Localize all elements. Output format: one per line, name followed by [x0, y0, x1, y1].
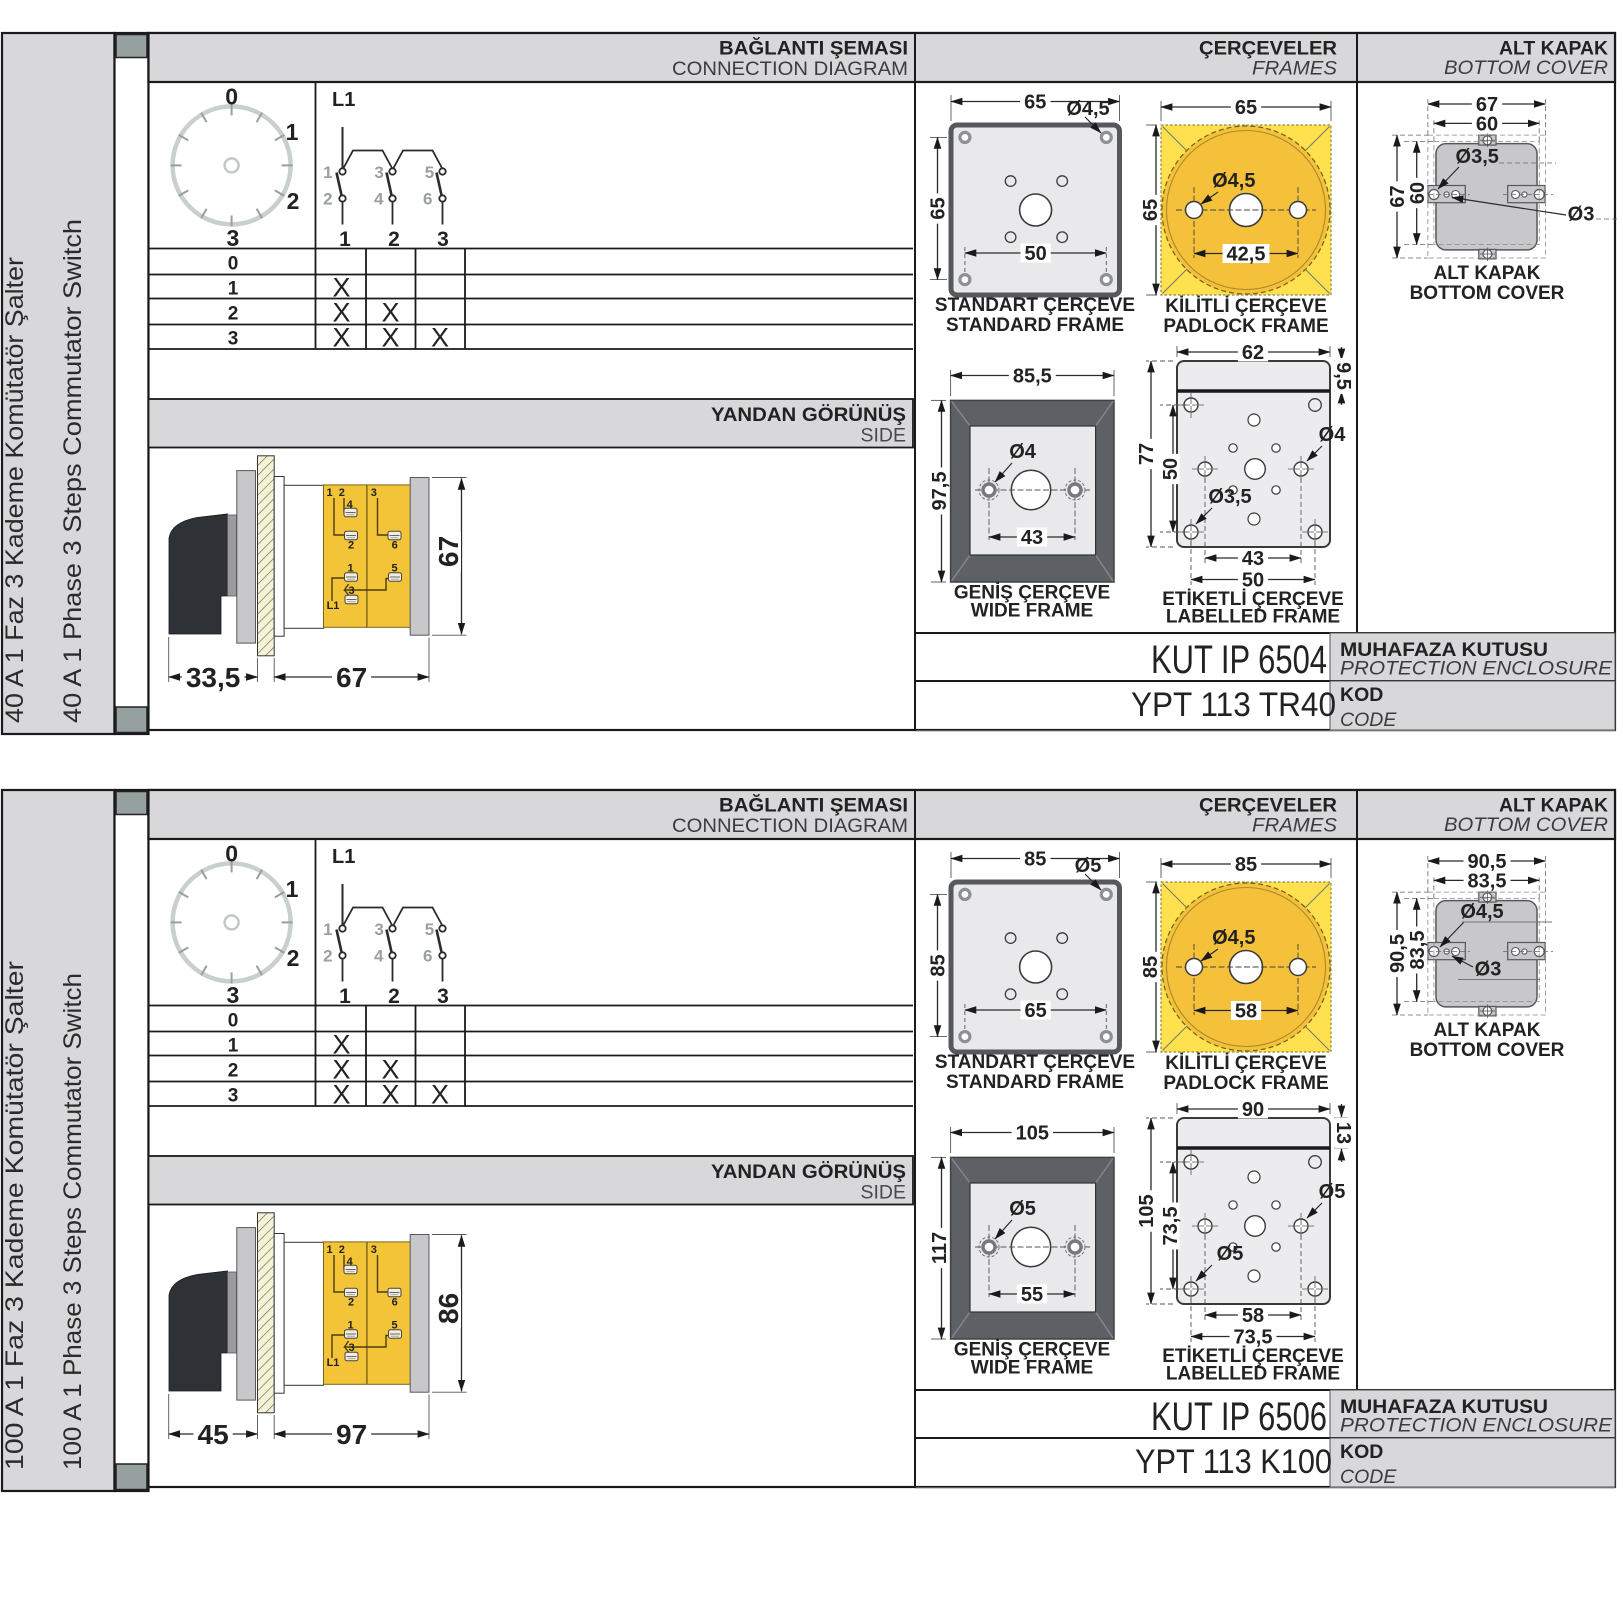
svg-text:SIDE: SIDE — [860, 425, 906, 447]
svg-text:33,5: 33,5 — [186, 662, 241, 693]
svg-text:50: 50 — [1160, 458, 1182, 480]
svg-text:97: 97 — [336, 1419, 367, 1450]
svg-text:WIDE FRAME: WIDE FRAME — [971, 1357, 1093, 1378]
svg-text:65: 65 — [928, 197, 950, 219]
svg-text:Ø3: Ø3 — [1568, 204, 1595, 226]
svg-text:Ø4: Ø4 — [1319, 424, 1347, 446]
svg-text:BOTTOM COVER: BOTTOM COVER — [1410, 1040, 1565, 1061]
svg-text:KİLİTLİ ÇERÇEVE: KİLİTLİ ÇERÇEVE — [1165, 1053, 1327, 1074]
svg-text:KOD: KOD — [1340, 1441, 1383, 1463]
svg-text:50: 50 — [1024, 243, 1046, 265]
svg-text:100 A 1 Faz 3 Kademe Komütatör: 100 A 1 Faz 3 Kademe Komütatör Şalter — [1, 961, 29, 1470]
svg-text:42,5: 42,5 — [1227, 244, 1266, 266]
svg-text:ALT KAPAK: ALT KAPAK — [1434, 263, 1541, 284]
svg-text:Ø5: Ø5 — [1319, 1181, 1346, 1203]
svg-text:Ø4,5: Ø4,5 — [1212, 927, 1255, 949]
svg-text:73,5: 73,5 — [1160, 1207, 1182, 1246]
svg-text:BOTTOM COVER: BOTTOM COVER — [1444, 814, 1608, 836]
svg-text:Ø5: Ø5 — [1217, 1243, 1244, 1265]
svg-text:85: 85 — [1024, 849, 1046, 871]
svg-text:67: 67 — [1387, 185, 1409, 207]
svg-text:ÇERÇEVELER: ÇERÇEVELER — [1199, 38, 1337, 60]
svg-text:CONNECTION DIAGRAM: CONNECTION DIAGRAM — [672, 58, 908, 80]
svg-text:43: 43 — [1021, 527, 1043, 549]
svg-text:YANDAN GÖRÜNÜŞ: YANDAN GÖRÜNÜŞ — [711, 1160, 906, 1183]
svg-text:PROTECTION ENCLOSURE: PROTECTION ENCLOSURE — [1340, 658, 1613, 680]
svg-text:ÇERÇEVELER: ÇERÇEVELER — [1199, 795, 1337, 817]
svg-text:CODE: CODE — [1340, 1466, 1397, 1488]
svg-text:BAĞLANTI ŞEMASI: BAĞLANTI ŞEMASI — [719, 37, 908, 60]
svg-text:CODE: CODE — [1340, 709, 1397, 731]
svg-text:45: 45 — [198, 1419, 229, 1450]
svg-text:85: 85 — [1140, 956, 1162, 978]
svg-text:KUT IP 6504: KUT IP 6504 — [1151, 638, 1327, 682]
svg-text:85: 85 — [928, 954, 950, 976]
svg-text:13: 13 — [1332, 1122, 1354, 1144]
svg-text:83,5: 83,5 — [1468, 871, 1507, 893]
svg-text:STANDARD FRAME: STANDARD FRAME — [946, 315, 1124, 336]
svg-text:65: 65 — [1024, 92, 1046, 114]
svg-text:60: 60 — [1407, 182, 1429, 204]
svg-text:Ø4,5: Ø4,5 — [1460, 901, 1503, 923]
svg-text:PADLOCK FRAME: PADLOCK FRAME — [1163, 1073, 1328, 1094]
svg-text:BAĞLANTI ŞEMASI: BAĞLANTI ŞEMASI — [719, 794, 908, 817]
svg-text:Ø4: Ø4 — [1009, 441, 1037, 463]
svg-text:83,5: 83,5 — [1407, 931, 1429, 970]
svg-text:40 A 1 Faz 3 Kademe Komütatör: 40 A 1 Faz 3 Kademe Komütatör Şalter — [1, 257, 29, 723]
svg-text:105: 105 — [1016, 1123, 1049, 1145]
svg-text:40 A 1 Phase 3 Steps Commutato: 40 A 1 Phase 3 Steps Commutator Switch — [59, 219, 87, 723]
svg-text:Ø3,5: Ø3,5 — [1208, 486, 1251, 508]
svg-text:90: 90 — [1242, 1099, 1264, 1121]
svg-text:65: 65 — [1024, 1000, 1046, 1022]
svg-text:KİLİTLİ ÇERÇEVE: KİLİTLİ ÇERÇEVE — [1165, 296, 1327, 317]
svg-text:9,5: 9,5 — [1332, 362, 1354, 390]
svg-text:65: 65 — [1140, 199, 1162, 221]
svg-text:WIDE FRAME: WIDE FRAME — [971, 600, 1093, 621]
svg-text:90,5: 90,5 — [1387, 934, 1409, 973]
svg-text:Ø3: Ø3 — [1475, 959, 1502, 981]
svg-text:Ø4,5: Ø4,5 — [1066, 98, 1109, 120]
svg-text:43: 43 — [1242, 548, 1264, 570]
svg-text:KOD: KOD — [1340, 684, 1383, 706]
svg-text:YANDAN GÖRÜNÜŞ: YANDAN GÖRÜNÜŞ — [711, 403, 906, 426]
svg-text:BOTTOM COVER: BOTTOM COVER — [1444, 57, 1608, 79]
svg-text:58: 58 — [1235, 1001, 1257, 1023]
svg-text:60: 60 — [1476, 114, 1498, 136]
svg-text:85,5: 85,5 — [1013, 366, 1052, 388]
svg-text:LABELLED FRAME: LABELLED FRAME — [1166, 607, 1340, 628]
svg-text:STANDART ÇERÇEVE: STANDART ÇERÇEVE — [935, 1052, 1135, 1073]
svg-text:ALT KAPAK: ALT KAPAK — [1434, 1020, 1541, 1041]
svg-text:YPT 113 TR40: YPT 113 TR40 — [1131, 686, 1336, 724]
svg-text:Ø3,5: Ø3,5 — [1456, 146, 1499, 168]
svg-text:100 A 1 Phase 3 Steps Commutat: 100 A 1 Phase 3 Steps Commutator Switch — [59, 973, 87, 1470]
svg-text:86: 86 — [433, 1293, 464, 1324]
svg-text:58: 58 — [1242, 1305, 1264, 1327]
svg-text:FRAMES: FRAMES — [1252, 58, 1337, 80]
svg-text:Ø5: Ø5 — [1009, 1198, 1036, 1220]
svg-text:85: 85 — [1235, 854, 1257, 876]
svg-text:YPT 113 K100: YPT 113 K100 — [1135, 1443, 1332, 1481]
svg-text:Ø4,5: Ø4,5 — [1212, 170, 1255, 192]
svg-text:117: 117 — [929, 1232, 951, 1264]
svg-text:Ø5: Ø5 — [1075, 855, 1102, 877]
svg-text:105: 105 — [1136, 1194, 1158, 1227]
svg-text:67: 67 — [336, 662, 367, 693]
svg-text:BOTTOM COVER: BOTTOM COVER — [1410, 283, 1565, 304]
svg-text:STANDARD FRAME: STANDARD FRAME — [946, 1072, 1124, 1093]
svg-text:CONNECTION DIAGRAM: CONNECTION DIAGRAM — [672, 815, 908, 837]
svg-text:67: 67 — [433, 536, 464, 567]
svg-text:55: 55 — [1021, 1284, 1043, 1306]
svg-text:PROTECTION ENCLOSURE: PROTECTION ENCLOSURE — [1340, 1415, 1613, 1437]
svg-text:65: 65 — [1235, 97, 1257, 119]
svg-text:PADLOCK FRAME: PADLOCK FRAME — [1163, 316, 1328, 337]
svg-text:KUT IP 6506: KUT IP 6506 — [1151, 1395, 1327, 1439]
svg-text:97,5: 97,5 — [929, 472, 951, 511]
svg-text:SIDE: SIDE — [860, 1182, 906, 1204]
svg-text:STANDART ÇERÇEVE: STANDART ÇERÇEVE — [935, 295, 1135, 316]
svg-text:62: 62 — [1242, 342, 1264, 364]
svg-text:LABELLED FRAME: LABELLED FRAME — [1166, 1364, 1340, 1385]
svg-text:77: 77 — [1136, 443, 1158, 465]
svg-text:FRAMES: FRAMES — [1252, 815, 1337, 837]
